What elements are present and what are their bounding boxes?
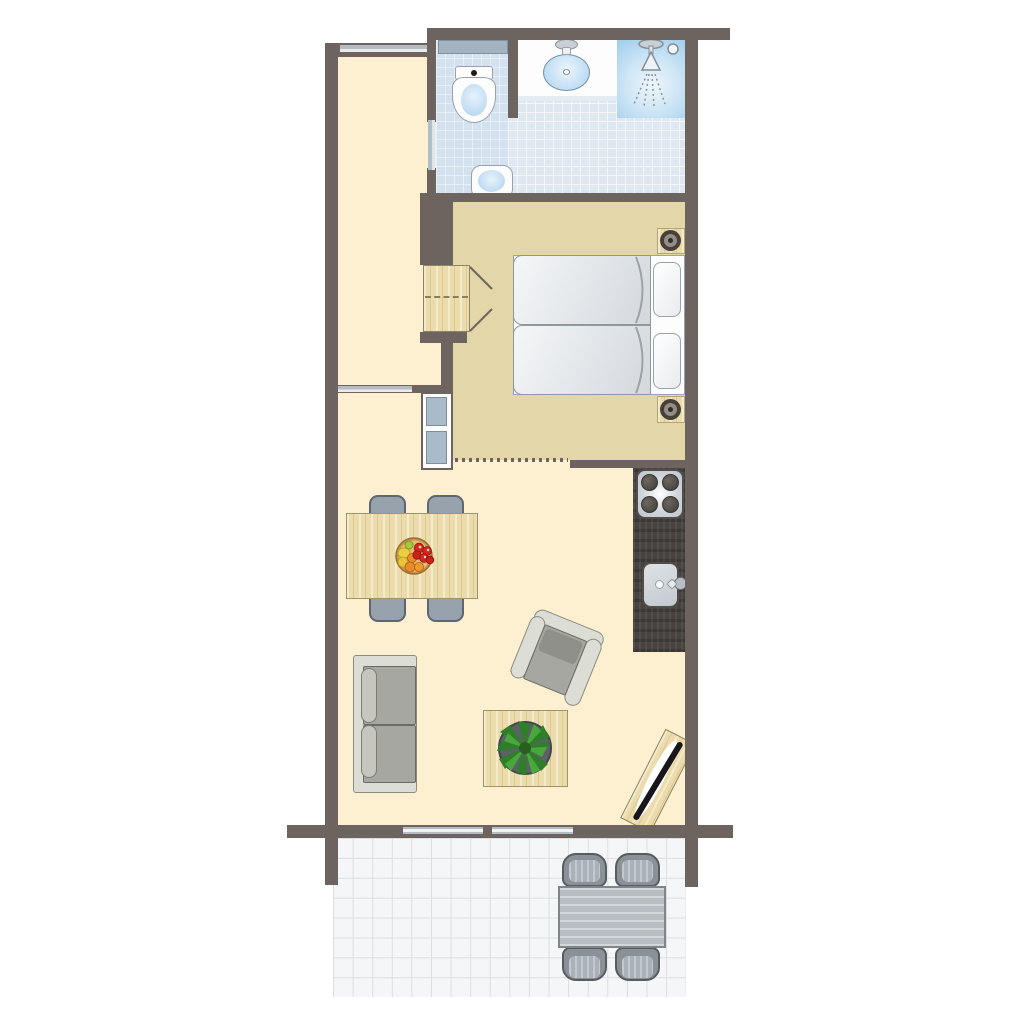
sofa-back-cushion-bottom <box>361 725 377 778</box>
hob-burner-4 <box>662 496 679 513</box>
open-passage-dotted-line <box>455 458 568 462</box>
wall-wc-partition <box>508 40 518 118</box>
radiator-shelf <box>438 40 508 54</box>
outdoor-chair-seat <box>622 956 653 978</box>
bathroom-door <box>428 120 435 170</box>
wall-left <box>325 43 338 885</box>
outdoor-chair-seat <box>569 860 600 882</box>
hob-burner-2 <box>662 474 679 491</box>
outdoor-chair-bottom-right <box>615 947 660 981</box>
wall-right <box>685 32 698 887</box>
toilet-bowl-inner <box>461 84 487 116</box>
sink-drain <box>655 580 664 589</box>
outdoor-chair-top-left <box>562 853 607 887</box>
floor-plan <box>0 0 1024 1024</box>
coffee-table <box>483 710 568 787</box>
twin-bed-duvet-top <box>513 255 651 325</box>
pillow-bottom <box>653 333 681 389</box>
hob <box>636 469 684 519</box>
toilet-flush-button <box>471 70 477 76</box>
vanity-drain <box>563 69 570 75</box>
wall-block-bedroom-nw <box>420 193 453 265</box>
terrace-sliding-door-right <box>492 827 573 834</box>
outdoor-chair-bottom-left <box>562 947 607 981</box>
hallway-opening <box>338 386 412 392</box>
entrance-window <box>340 45 427 52</box>
pillow-top <box>653 262 681 317</box>
vanity-tap-spout <box>562 47 571 55</box>
sofa-back-cushion-top <box>361 668 377 723</box>
lamp-bottom-dot <box>668 407 673 412</box>
outdoor-chair-seat <box>569 956 600 978</box>
hob-burner-1 <box>641 474 658 491</box>
lamp-top-dot <box>668 238 673 243</box>
sliding-door-panel-2 <box>426 431 447 464</box>
terrace-sliding-door-left <box>403 827 483 834</box>
wall-bathroom-west-upper <box>427 40 436 122</box>
sliding-door-panel-1 <box>426 397 447 426</box>
hob-burner-3 <box>641 496 658 513</box>
wardrobe <box>423 265 470 332</box>
wall-bathroom-west-lower <box>427 168 436 194</box>
bedroom-sliding-door <box>421 392 453 470</box>
outdoor-chair-seat <box>622 860 653 882</box>
wall-bathroom-south <box>436 193 685 202</box>
wardrobe-divider-line <box>425 296 468 298</box>
wall-bedroom-south <box>570 460 685 468</box>
outdoor-table <box>558 886 666 948</box>
small-washbasin-inner <box>478 170 505 192</box>
dining-table <box>346 513 478 599</box>
twin-bed-duvet-bottom <box>513 325 651 395</box>
wall-under-wardrobe <box>420 332 467 343</box>
shower-tray <box>617 40 685 118</box>
outdoor-chair-top-right <box>615 853 660 887</box>
